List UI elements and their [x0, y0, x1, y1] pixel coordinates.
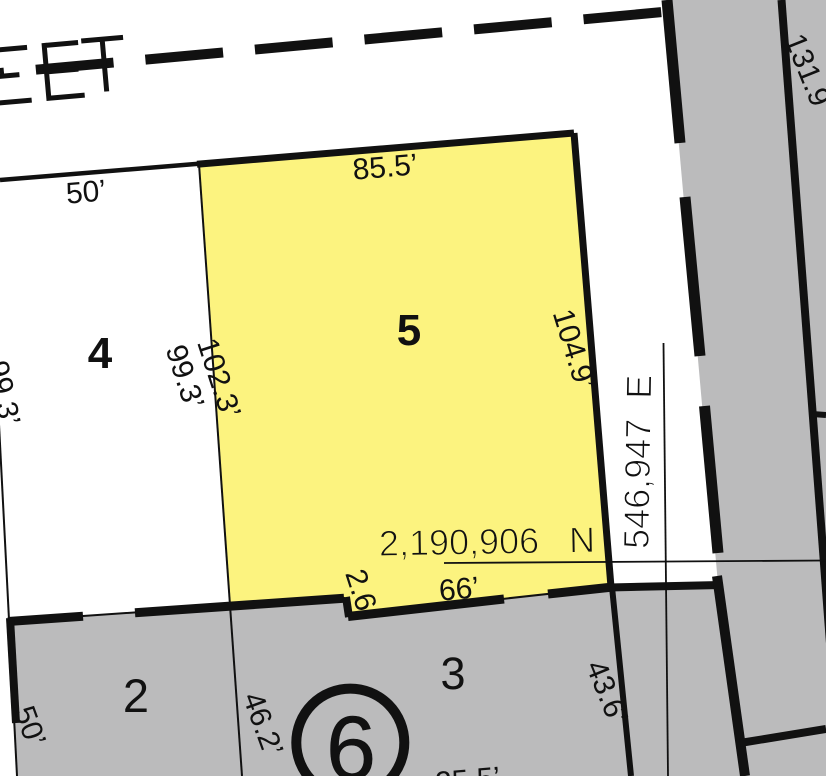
svg-text:5: 5: [397, 306, 421, 355]
svg-text:66’: 66’: [438, 571, 481, 607]
svg-text:85.5’: 85.5’: [351, 148, 419, 187]
svg-text:2: 2: [123, 669, 149, 722]
svg-text:50’: 50’: [65, 174, 108, 210]
svg-text:546,947 E: 546,947 E: [615, 374, 659, 549]
svg-text:4: 4: [88, 329, 113, 378]
svg-text:6: 6: [326, 699, 376, 776]
svg-text:2,190,906 N: 2,190,906 N: [379, 519, 596, 564]
svg-text:3: 3: [440, 648, 465, 699]
